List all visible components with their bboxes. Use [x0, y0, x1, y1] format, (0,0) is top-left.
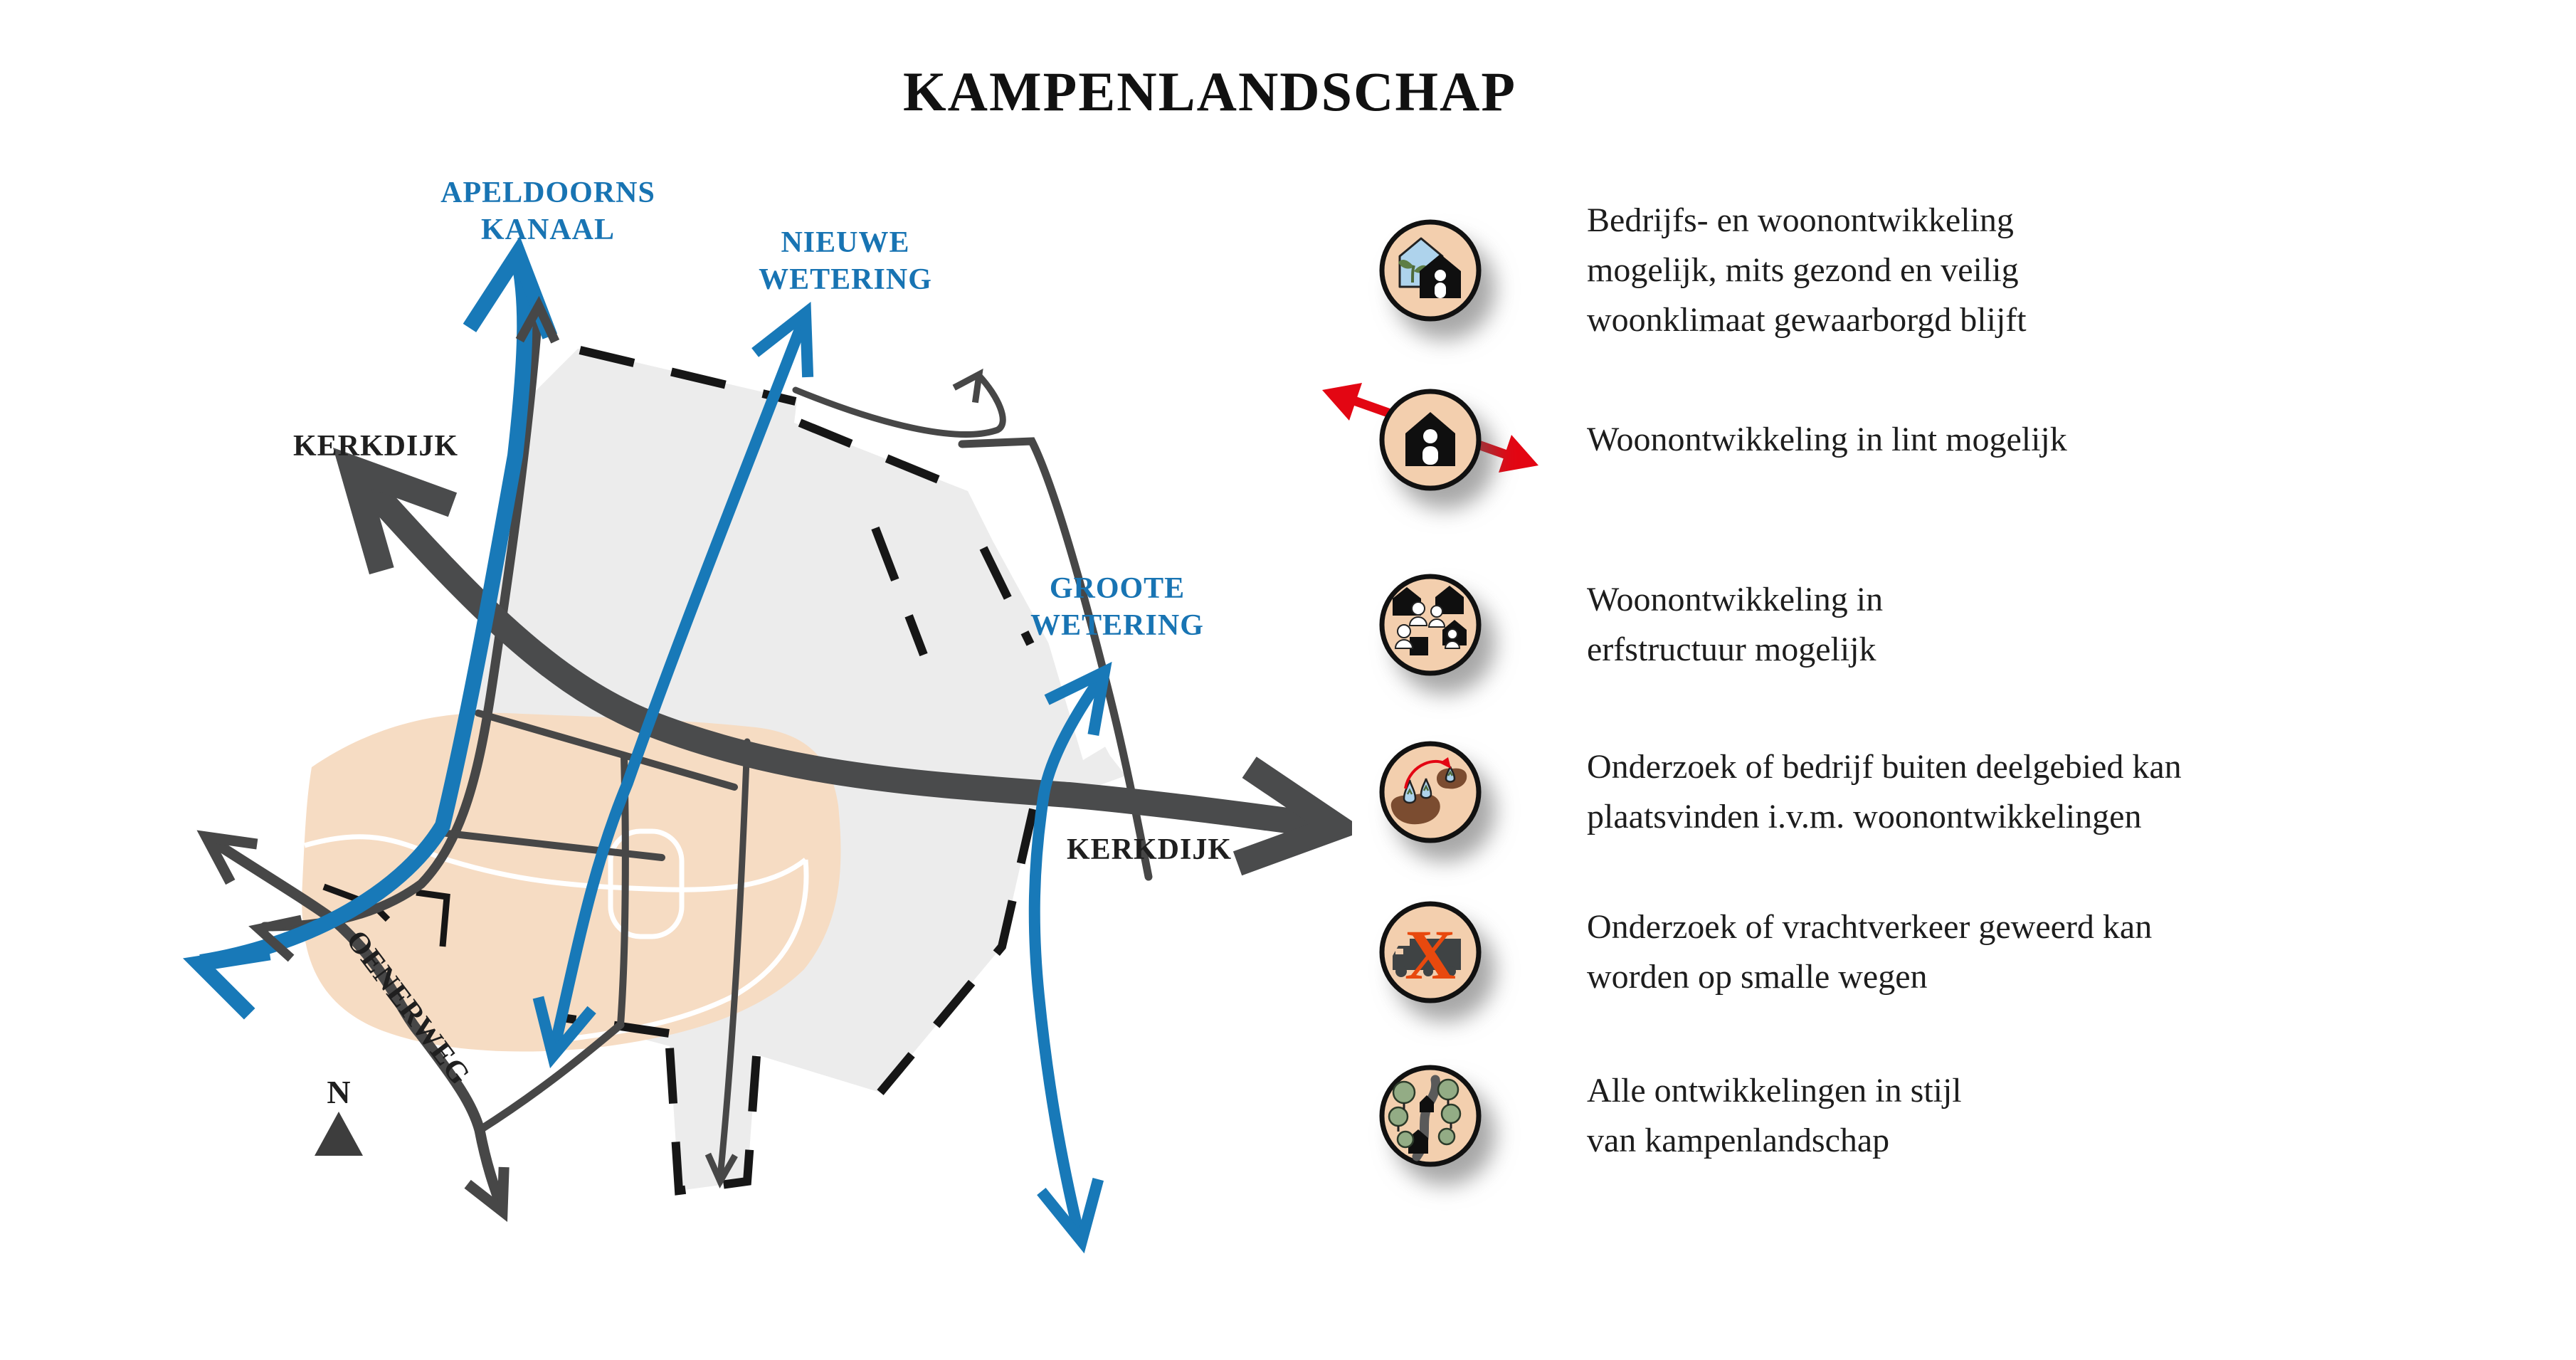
legend-line: woonklimaat gewaarborgd blijft: [1587, 295, 2027, 345]
legend-text-farmyard: Woonontwikkeling in erfstructuur mogelij…: [1587, 575, 1883, 675]
legend-line: worden op smalle wegen: [1587, 952, 2152, 1002]
schematic-map: APELDOORNS KANAAL NIEUWE WETERING GROOTE…: [0, 0, 1352, 1360]
relocate-business-icon: [1377, 739, 1484, 845]
legend-line: Bedrijfs- en woonontwikkeling: [1587, 196, 2027, 246]
legend-text-style: Alle ontwikkelingen in stijl van kampenl…: [1587, 1066, 1962, 1166]
label-nieuwe-wetering-line2: WETERING: [759, 263, 932, 296]
legend-line: Alle ontwikkelingen in stijl: [1587, 1066, 1962, 1116]
label-groote-wetering-line2: WETERING: [1030, 609, 1204, 642]
legend-text-no-truck: Onderzoek of vrachtverkeer geweerd kan w…: [1587, 902, 2152, 1002]
label-groote-wetering-line1: GROOTE: [1050, 572, 1185, 605]
legend-text-business-housing: Bedrijfs- en woonontwikkeling mogelijk, …: [1587, 196, 2027, 345]
legend-line: van kampenlandschap: [1587, 1116, 1962, 1166]
no-truck-traffic-icon: X: [1377, 899, 1484, 1006]
legend-line: Onderzoek of bedrijf buiten deelgebied k…: [1587, 742, 2182, 792]
compass: N: [315, 1074, 363, 1156]
landscape-style-icon: [1377, 1063, 1484, 1169]
legend-line: erfstructuur mogelijk: [1587, 625, 1883, 675]
legend-line: plaatsvinden i.v.m. woonontwikkelingen: [1587, 792, 2182, 842]
label-kerkdijk-east: KERKDIJK: [1067, 833, 1232, 866]
cross-glyph: X: [1405, 915, 1456, 994]
label-kerkdijk-northwest: KERKDIJK: [293, 430, 458, 463]
label-apeldoorns-kanaal-line1: APELDOORNS: [440, 176, 655, 209]
label-nieuwe-wetering-line1: NIEUWE: [781, 226, 909, 259]
business-and-housing-icon: [1377, 217, 1484, 324]
compass-north-label: N: [327, 1074, 350, 1110]
label-apeldoorns-kanaal-line2: KANAAL: [481, 214, 615, 246]
legend-line: Woonontwikkeling in: [1587, 575, 1883, 625]
legend-line: Onderzoek of vrachtverkeer geweerd kan: [1587, 902, 2152, 952]
legend-line: Woonontwikkeling in lint mogelijk: [1587, 415, 2067, 465]
kampenlandschap-infographic: KAMPENLANDSCHAP: [0, 0, 2576, 1360]
legend-line: mogelijk, mits gezond en veilig: [1587, 246, 2027, 295]
legend-text-relocate: Onderzoek of bedrijf buiten deelgebied k…: [1587, 742, 2182, 842]
housing-in-ribbon-icon: [1377, 386, 1484, 493]
housing-in-farmyard-icon: [1377, 571, 1484, 678]
legend-text-ribbon: Woonontwikkeling in lint mogelijk: [1587, 415, 2067, 465]
compass-north-arrow: [315, 1112, 363, 1156]
